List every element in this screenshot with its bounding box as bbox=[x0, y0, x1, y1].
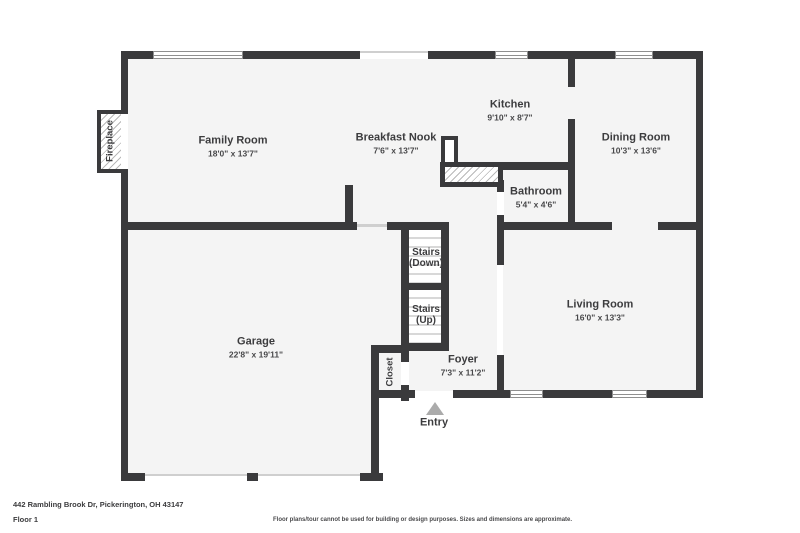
window bbox=[612, 390, 647, 398]
room-dims: 22'8" x 19'11" bbox=[229, 349, 283, 361]
room-label-kitchen: Kitchen 9'10" x 8'7" bbox=[487, 99, 532, 124]
wall-segment bbox=[543, 390, 612, 398]
room-name: Stairs bbox=[409, 247, 443, 258]
footer-disclaimer: Floor plans/tour cannot be used for buil… bbox=[273, 517, 572, 523]
room-dims: 16'0" x 13'3" bbox=[567, 312, 634, 324]
room-dims: 18'0" x 13'7" bbox=[198, 148, 267, 160]
room-dims: 7'3" x 11'2" bbox=[441, 367, 486, 379]
wall-segment bbox=[121, 222, 357, 230]
garage-door bbox=[145, 474, 247, 476]
window bbox=[615, 51, 653, 59]
room-name: Dining Room bbox=[602, 132, 670, 145]
room-name: Foyer bbox=[441, 354, 486, 367]
fireplace-wall-opening bbox=[121, 114, 128, 169]
room-label-closet: Closet bbox=[385, 357, 396, 386]
room-name: Living Room bbox=[567, 299, 634, 312]
footer-address: 442 Rambling Brook Dr, Pickerington, OH … bbox=[13, 500, 183, 509]
room-label-fireplace: Fireplace bbox=[105, 120, 116, 162]
room-name: Kitchen bbox=[487, 99, 532, 112]
wall-segment bbox=[387, 222, 449, 230]
wall-segment bbox=[401, 222, 409, 362]
room-label-dining-room: Dining Room 10'3" x 13'6" bbox=[602, 132, 670, 157]
wall-segment bbox=[371, 345, 409, 353]
room-label-family-room: Family Room 18'0" x 13'7" bbox=[198, 135, 267, 160]
window bbox=[495, 51, 528, 59]
floor-fill-garage-lower bbox=[128, 345, 371, 474]
room-name: Bathroom bbox=[510, 186, 562, 199]
room-name: Family Room bbox=[198, 135, 267, 148]
wall-segment bbox=[345, 185, 353, 230]
wall-segment bbox=[401, 385, 409, 401]
room-sub: (Up) bbox=[412, 315, 440, 326]
room-name: Stairs bbox=[412, 304, 440, 315]
wall-segment bbox=[658, 222, 703, 230]
room-dims: 5'4" x 4'6" bbox=[510, 199, 562, 211]
room-label-stairs-up: Stairs (Up) bbox=[412, 304, 440, 326]
garage-entry-door bbox=[357, 224, 387, 227]
kitchen-counter bbox=[440, 162, 503, 187]
bathroom-door-opening bbox=[497, 192, 504, 215]
window bbox=[510, 390, 543, 398]
wall-segment bbox=[497, 355, 504, 398]
room-name: Entry bbox=[420, 417, 448, 430]
room-label-bathroom: Bathroom 5'4" x 4'6" bbox=[510, 186, 562, 211]
wall-segment bbox=[497, 222, 612, 230]
wall-segment bbox=[243, 51, 360, 59]
room-label-entry: Entry bbox=[420, 417, 448, 430]
room-dims: 9'10" x 8'7" bbox=[487, 112, 532, 124]
wall-segment bbox=[371, 345, 379, 481]
wall-segment bbox=[247, 473, 258, 481]
floorplan-canvas: Fireplace Closet Family Room 18' bbox=[0, 0, 800, 533]
garage-door bbox=[258, 474, 360, 476]
wall-segment bbox=[121, 473, 145, 481]
window bbox=[153, 51, 243, 59]
footer-floor-label: Floor 1 bbox=[13, 515, 38, 524]
wall-segment bbox=[428, 51, 495, 59]
wall-segment bbox=[568, 119, 575, 230]
room-label-foyer: Foyer 7'3" x 11'2" bbox=[441, 354, 486, 379]
wall-segment bbox=[568, 58, 575, 87]
wall-segment bbox=[401, 283, 449, 290]
room-dims: 10'3" x 13'6" bbox=[602, 145, 670, 157]
room-dims: 7'6" x 13'7" bbox=[356, 145, 437, 157]
room-label-garage: Garage 22'8" x 19'11" bbox=[229, 336, 283, 361]
closet-door-opening bbox=[401, 362, 409, 385]
wall-segment bbox=[497, 162, 575, 170]
room-sub: (Down) bbox=[409, 258, 443, 269]
wall-segment bbox=[647, 390, 703, 398]
slider-opening bbox=[360, 51, 428, 53]
room-name: Garage bbox=[229, 336, 283, 349]
room-label-breakfast-nook: Breakfast Nook 7'6" x 13'7" bbox=[356, 132, 437, 157]
room-name: Breakfast Nook bbox=[356, 132, 437, 145]
entry-arrow-icon bbox=[426, 402, 444, 415]
room-label-stairs-down: Stairs (Down) bbox=[409, 247, 443, 269]
room-label-living-room: Living Room 16'0" x 13'3" bbox=[567, 299, 634, 324]
